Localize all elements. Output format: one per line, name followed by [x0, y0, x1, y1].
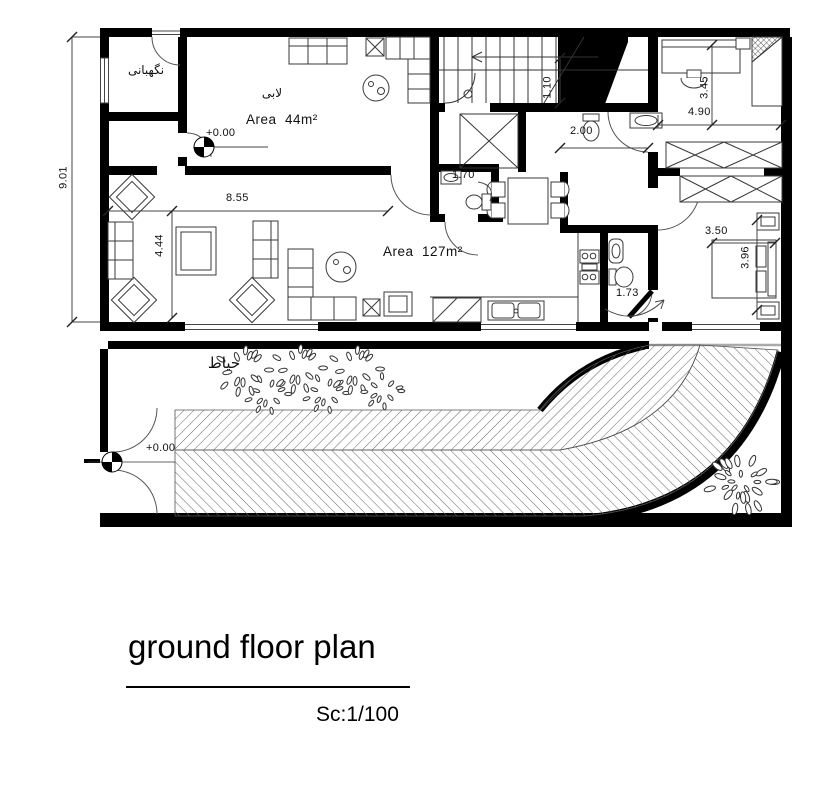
dim-bedroom2-depth: 3.96 — [741, 238, 752, 278]
title-underline — [126, 686, 410, 688]
drawing-title: ground floor plan — [128, 630, 376, 663]
dim-wc-width: 1.70 — [452, 170, 475, 181]
dim-corridor-width: 2.00 — [570, 126, 593, 137]
guard-room-label: نگهبانی — [116, 64, 176, 76]
dim-bedroom2-width: 3.50 — [705, 226, 728, 237]
driveway-hatch — [88, 345, 778, 516]
dim-stair-width: 1.10 — [543, 68, 554, 108]
lobby-area-label: Area 44m² — [246, 113, 318, 127]
level-marker-gate — [102, 452, 122, 472]
dim-bathroom-width: 1.73 — [616, 288, 639, 299]
level-marker-lobby — [194, 137, 214, 157]
living-area-label: Area 127m² — [383, 245, 463, 259]
level-lobby-label: +0.00 — [206, 128, 235, 139]
scale-label: Sc:1/100 — [316, 704, 399, 725]
dim-living-width: 8.55 — [226, 193, 249, 204]
lobby-label: لابی — [250, 87, 294, 99]
dim-living-depth: 4.44 — [155, 226, 166, 266]
elevator-shaft — [460, 114, 518, 168]
level-gate-label: +0.00 — [146, 443, 175, 454]
courtyard-label: حیاط — [198, 356, 250, 371]
dim-site-height: 9.01 — [59, 158, 70, 198]
dim-bedroom1-width: 4.90 — [688, 107, 711, 118]
floor-plan-page: نگهبانی لابی Area 44m² Area 127m² حیاط +… — [0, 0, 825, 785]
dim-bedroom1-depth: 3.45 — [700, 68, 711, 108]
furniture-layer — [108, 37, 782, 323]
